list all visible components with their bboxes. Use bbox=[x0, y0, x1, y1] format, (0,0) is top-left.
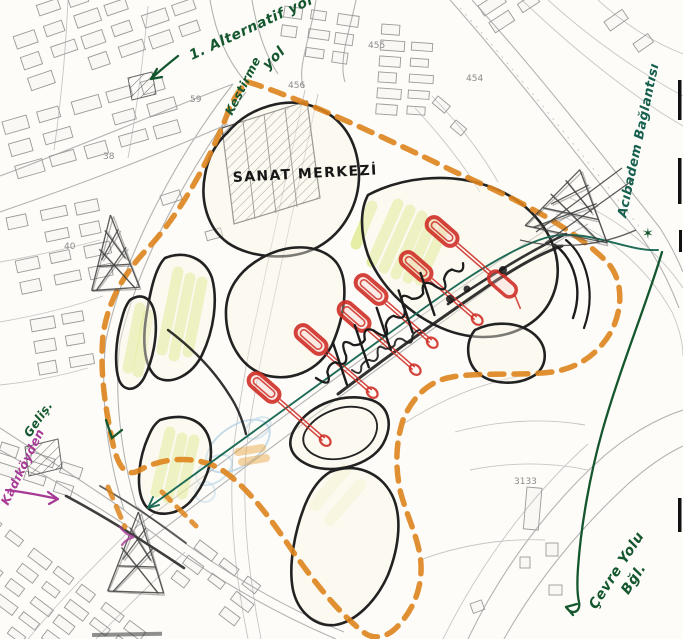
star-mark: ✶ bbox=[642, 226, 654, 242]
site-plan-sketch: 4554564545938403133 bbox=[0, 0, 683, 639]
parcel-number: 40 bbox=[64, 242, 76, 252]
parcel-number: 456 bbox=[288, 81, 305, 91]
parcel-number: 3133 bbox=[514, 477, 537, 487]
sketch-canvas: 4554564545938403133 bbox=[0, 0, 683, 639]
parcel-number: 455 bbox=[368, 41, 385, 51]
parcel-number: 454 bbox=[466, 74, 483, 84]
parcel-number: 38 bbox=[103, 152, 115, 162]
parcel-number: 59 bbox=[190, 95, 202, 105]
